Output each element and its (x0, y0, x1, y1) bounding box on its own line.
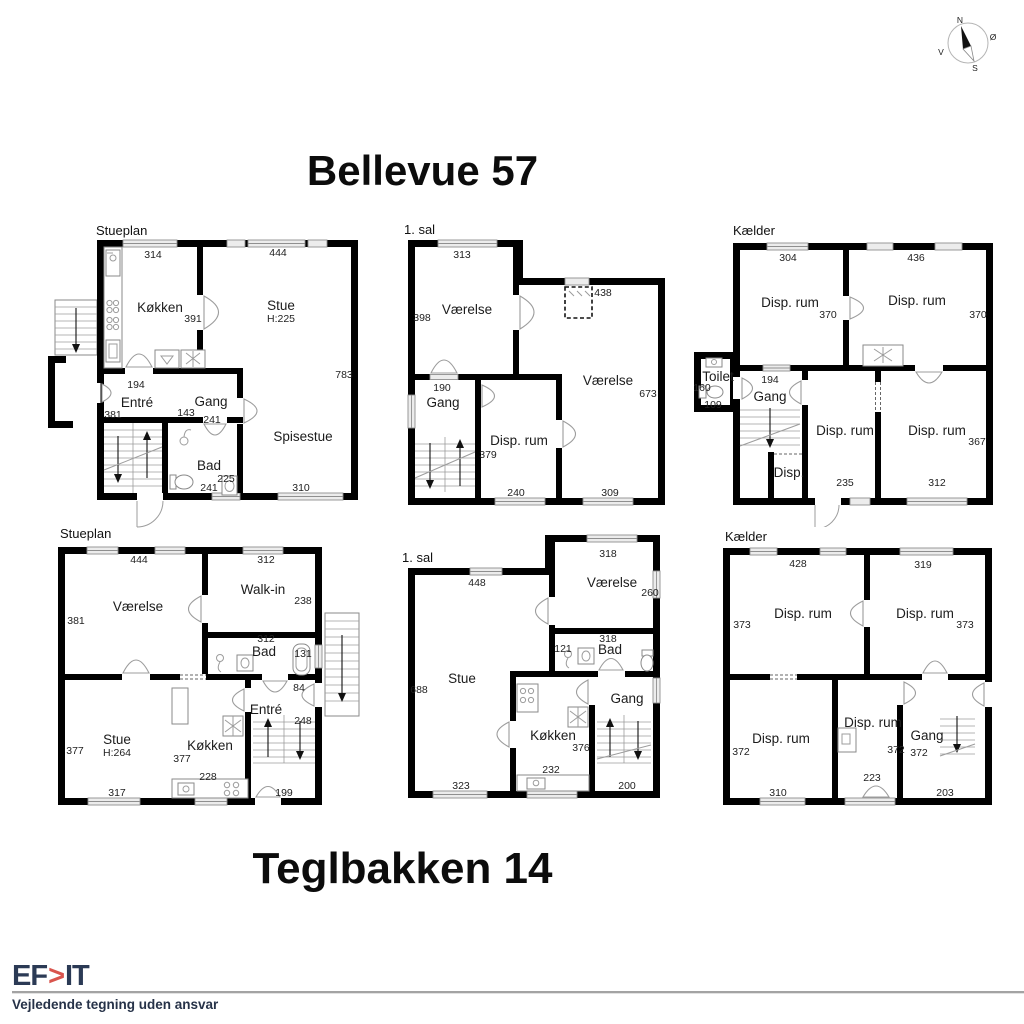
floor-label: 1. sal (402, 550, 433, 565)
dim-label: 317 (108, 787, 126, 799)
room-label: Værelse (587, 575, 637, 590)
compass-w: V (938, 47, 944, 57)
dim-label: 372 (732, 746, 750, 758)
dim-label: 436 (907, 252, 925, 264)
dim-label: 312 (257, 554, 275, 566)
room-label: Stue (103, 732, 131, 747)
dim-label: 84 (293, 682, 305, 694)
dim-label: 223 (863, 772, 881, 784)
floor-label: Stueplan (96, 223, 147, 238)
dim-label: 398 (413, 312, 431, 324)
room-label: Disp. rum (761, 295, 819, 310)
room-label: Køkken (187, 738, 233, 753)
dim-label: 444 (130, 554, 148, 566)
dim-label: 314 (144, 249, 162, 261)
exterior-stairs-icon (55, 300, 97, 355)
dim-label: 323 (452, 780, 470, 792)
compass-s: S (972, 63, 978, 73)
dim-label: 310 (769, 787, 787, 799)
floor-label: 1. sal (404, 222, 435, 237)
dim-label: 373 (956, 619, 974, 631)
floor-label: Kælder (725, 529, 768, 544)
dim-label: 370 (819, 309, 837, 321)
dim-label: 190 (433, 382, 451, 394)
room-label: Værelse (442, 302, 492, 317)
dim-label: 194 (127, 379, 145, 391)
room-label: Gang (753, 389, 786, 404)
dim-label: 367 (968, 436, 986, 448)
room-label: Entré (250, 702, 282, 717)
room-label: Disp. rum (908, 423, 966, 438)
dim-label: 248 (294, 715, 312, 727)
dim-label: 240 (507, 487, 525, 499)
room-label: Spisestue (273, 429, 332, 444)
dim-label: 304 (779, 252, 797, 264)
room-label: Køkken (137, 300, 183, 315)
opening-dashed (770, 674, 797, 680)
room-label: Gang (610, 691, 643, 706)
room-label: Stue (448, 671, 476, 686)
floorplan-teglbakken-kaelder: Kælder (715, 528, 1005, 813)
dim-label: 391 (184, 313, 202, 325)
dim-label: 203 (936, 787, 954, 799)
room-label: Gang (910, 728, 943, 743)
room-label: Entré (121, 395, 153, 410)
dim-label: 444 (269, 247, 287, 259)
room-label: Walk-in (241, 582, 286, 597)
property-title-teglbakken: Teglbakken 14 (230, 843, 575, 895)
dim-label: 232 (542, 764, 560, 776)
dim-label: 673 (639, 388, 657, 400)
dim-label: 241 (200, 482, 218, 494)
room-label: Disp. rum (844, 715, 902, 730)
floorplan-bellevue-kaelder: Kælder (685, 222, 1005, 527)
floorplan-bellevue-stueplan: Stueplan (45, 222, 375, 528)
dim-label: 143 (177, 407, 195, 419)
dim-label: 194 (761, 374, 779, 386)
footer-divider (12, 991, 1024, 994)
dim-label: 370 (969, 309, 987, 321)
compass-e: Ø (990, 32, 997, 42)
dim-label: 438 (594, 287, 612, 299)
dim-label: 381 (67, 615, 85, 627)
dim-label: 381 (104, 409, 122, 421)
property-title-bellevue: Bellevue 57 (250, 146, 595, 196)
dim-label: 372 (887, 744, 905, 756)
dim-label: 225 (217, 473, 235, 485)
dim-label: 200 (618, 780, 636, 792)
dim-label: 131 (294, 648, 312, 660)
threshold (430, 375, 458, 380)
dim-label: 373 (733, 619, 751, 631)
room-label: Disp. rum (774, 606, 832, 621)
porch-walls (48, 356, 73, 428)
room-label: Værelse (113, 599, 163, 614)
dim-label: 199 (275, 787, 293, 799)
dim-label: 228 (199, 771, 217, 783)
dim-label: 121 (554, 643, 572, 655)
dim-label: 241 (203, 414, 221, 426)
dim-label: 313 (453, 249, 471, 261)
room-label: Disp. rum (896, 606, 954, 621)
dim-label: 260 (641, 587, 659, 599)
room-label: Disp. rum (490, 433, 548, 448)
room-label: Disp. (774, 465, 805, 480)
logo-left: EF (12, 960, 47, 992)
dim-label: 310 (292, 482, 310, 494)
floorplan-teglbakken-stueplan: Stueplan (50, 528, 385, 813)
page: Bellevue 57 Teglbakken 14 N Ø S V Stuepl… (0, 0, 1024, 1024)
dim-label: 318 (599, 548, 617, 560)
floorplan-bellevue-1sal: 1. sal (395, 222, 675, 512)
dim-label: 377 (173, 753, 191, 765)
opening-dashed (180, 674, 206, 680)
dim-label: 448 (468, 577, 486, 589)
room-label: Disp. rum (816, 423, 874, 438)
compass-n: N (957, 15, 963, 25)
dim-label: 235 (836, 477, 854, 489)
room-label: Gang (426, 395, 459, 410)
room-height-label: H:264 (103, 747, 131, 759)
compass-icon: N Ø S V (920, 5, 1015, 85)
room-label: Disp. rum (888, 293, 946, 308)
room-label: Bad (197, 458, 221, 473)
dim-label: 428 (789, 558, 807, 570)
dim-label: 783 (335, 369, 353, 381)
room-label: Gang (194, 394, 227, 409)
logo-chevron-icon: > (47, 960, 65, 992)
dim-label: 309 (601, 487, 619, 499)
floorplan-teglbakken-1sal: 1. sal (400, 528, 670, 806)
room-label: Disp. rum (752, 731, 810, 746)
appliance-icon (838, 728, 856, 752)
disclaimer-text: Vejledende tegning uden ansvar (12, 997, 218, 1012)
vent-icon (863, 345, 903, 366)
dim-label: 379 (479, 449, 497, 461)
dim-label: 312 (928, 477, 946, 489)
dim-label: 377 (66, 745, 84, 757)
logo-right: IT (65, 960, 89, 992)
room-label: Køkken (530, 728, 576, 743)
floor-label: Stueplan (60, 528, 111, 541)
chimney-icon (565, 287, 592, 318)
dim-label: 238 (294, 595, 312, 607)
compass-needle-icon (961, 26, 971, 49)
room-label: Bad (252, 644, 276, 659)
dim-label: 160 (693, 382, 711, 394)
dim-label: 372 (910, 747, 928, 759)
room-label: Bad (598, 642, 622, 657)
exterior-stairs-icon (325, 613, 359, 716)
dim-label: 688 (410, 684, 428, 696)
room-label: Stue (267, 298, 295, 313)
room-label: Værelse (583, 373, 633, 388)
room-height-label: H:225 (267, 313, 295, 325)
efkit-logo: EF>IT (12, 960, 89, 993)
floor-label: Kælder (733, 223, 776, 238)
dim-label: 109 (704, 399, 722, 411)
dim-label: 319 (914, 559, 932, 571)
dim-label: 376 (572, 742, 590, 754)
